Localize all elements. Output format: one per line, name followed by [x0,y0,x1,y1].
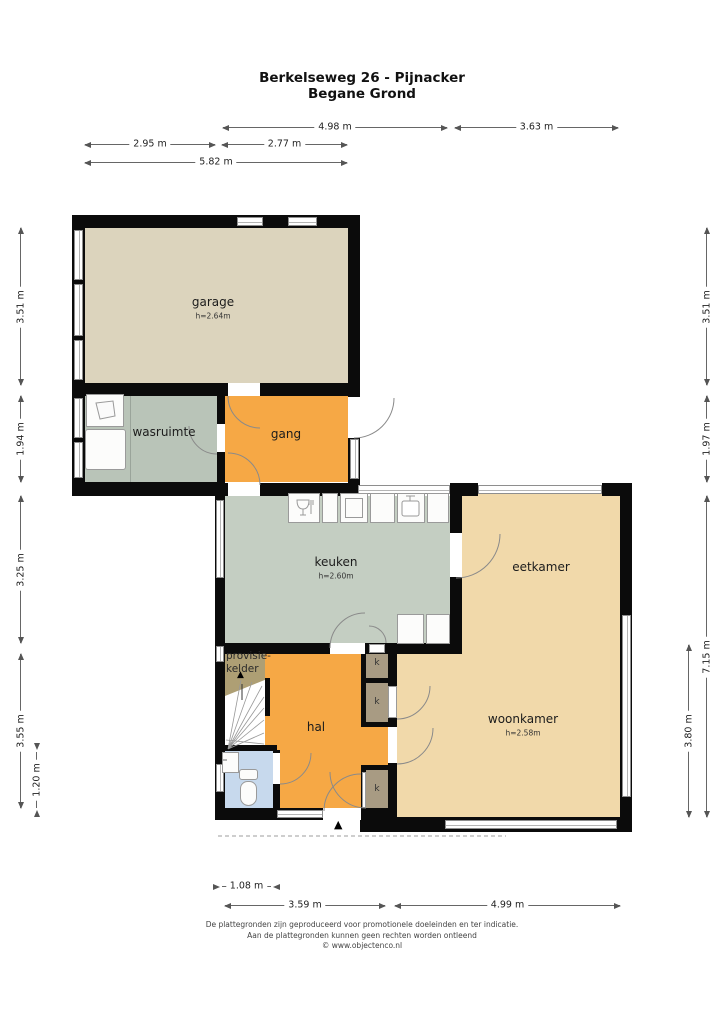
door-opening-hal-woonkamer [388,727,397,763]
window [74,230,83,280]
title-floor: Begane Grond [0,86,724,102]
cooktop [340,493,368,523]
door-opening-wasruimte-gang [217,424,225,452]
door-arc [354,398,394,438]
dim-bottom-499: 4.99 m [395,905,620,906]
wall [361,648,366,727]
dim-left-355: 3.55 m [20,654,21,808]
dim-right-715: 7.15 m [706,496,707,817]
dim-top-498: 4.98 m [223,127,447,128]
label-eetkamer: eetkamer [512,560,570,574]
window [74,340,83,380]
wall [361,722,390,727]
window [216,646,224,662]
entrance-arrow: ▲ [334,818,342,831]
wall [72,482,225,496]
window [478,485,602,494]
window [74,442,83,478]
dim-bottom-108: 1.08 m [222,886,271,887]
dim-right-351: 3.51 m [706,228,707,385]
washing-machine [86,394,124,427]
dim-top-277: 2.77 m [222,144,347,145]
kitchen-counter [322,493,338,523]
wall [361,678,390,683]
label-woonkamer-height: h=2.58m [505,729,540,738]
door-opening-gang-exterior [348,397,360,438]
dim-bottom-359: 3.59 m [225,905,385,906]
door-opening-keuken-eetkamer [450,533,462,577]
wall [85,383,348,396]
label-wasruimte: wasruimte [132,425,195,439]
disclaimer-line-1: De plattegronden zijn geproduceerd voor … [0,920,724,931]
label-woonkamer: woonkamer [488,712,558,726]
dim-right-380: 3.80 m [688,645,689,817]
door-opening-keuken-hal [330,643,365,654]
window [74,398,83,438]
floorplan-page: Berkelseweg 26 - Pijnacker Begane Grond [0,0,724,1024]
label-garage-height: h=2.64m [195,312,230,321]
label-hal: hal [307,720,325,734]
kitchen-counter [370,493,395,523]
window [445,820,617,829]
wasruimte-partition [130,396,131,482]
window [350,439,359,479]
window [237,217,263,226]
dim-right-197: 1.97 m [706,396,707,482]
window [74,284,83,336]
label-k2: k [374,697,379,707]
toilet-bowl [240,781,257,806]
room-eetkamer-woonkamer [462,494,620,817]
dim-left-120: 1.20 m [36,752,37,808]
page-title: Berkelseweg 26 - Pijnacker Begane Grond [0,70,724,102]
dishwasher [288,493,320,523]
wall [360,808,390,832]
toilet-tank [239,769,258,780]
copyright: © www.objectenco.nl [0,941,724,952]
label-k3: k [374,784,379,794]
disclaimer-line-2: Aan de plattegronden kunnen geen rechten… [0,931,724,942]
wall [218,745,277,751]
toilet-hand-basin [222,752,239,773]
kitchen-appliance [397,614,424,644]
window [288,217,317,226]
dim-top-582: 5.82 m [85,162,347,163]
disclaimer: De plattegronden zijn geproduceerd voor … [0,920,724,952]
dim-left-325: 3.25 m [20,496,21,643]
label-gang: gang [271,427,301,441]
label-keuken: keuken [314,555,357,569]
label-provisiekelder-1: provisie- [226,650,271,663]
dim-left-351: 3.51 m [20,228,21,385]
stairs-up-arrow: ▲ [237,670,244,680]
door-opening-toilet [273,753,280,784]
dim-top-295: 2.95 m [85,144,215,145]
title-address: Berkelseweg 26 - Pijnacker [0,70,724,86]
laundry-sink [85,429,126,470]
label-k1: k [374,658,379,668]
dim-top-363: 3.63 m [455,127,618,128]
kitchen-sink [397,493,425,523]
closet-k3-door [362,772,366,808]
room-woonkamer-left [397,654,462,817]
label-keuken-height: h=2.60m [318,572,353,581]
window [277,810,323,818]
window [216,500,224,578]
closet-k1-door [369,644,385,653]
door-opening-garage-gang [228,383,260,396]
wall [265,678,270,716]
door-opening-gang-keuken [228,483,260,496]
closet-k2-door [388,686,397,718]
kitchen-counter [427,493,449,523]
dim-left-194: 1.94 m [20,396,21,482]
window [622,615,631,797]
label-garage: garage [192,295,234,309]
kitchen-appliance [426,614,450,644]
